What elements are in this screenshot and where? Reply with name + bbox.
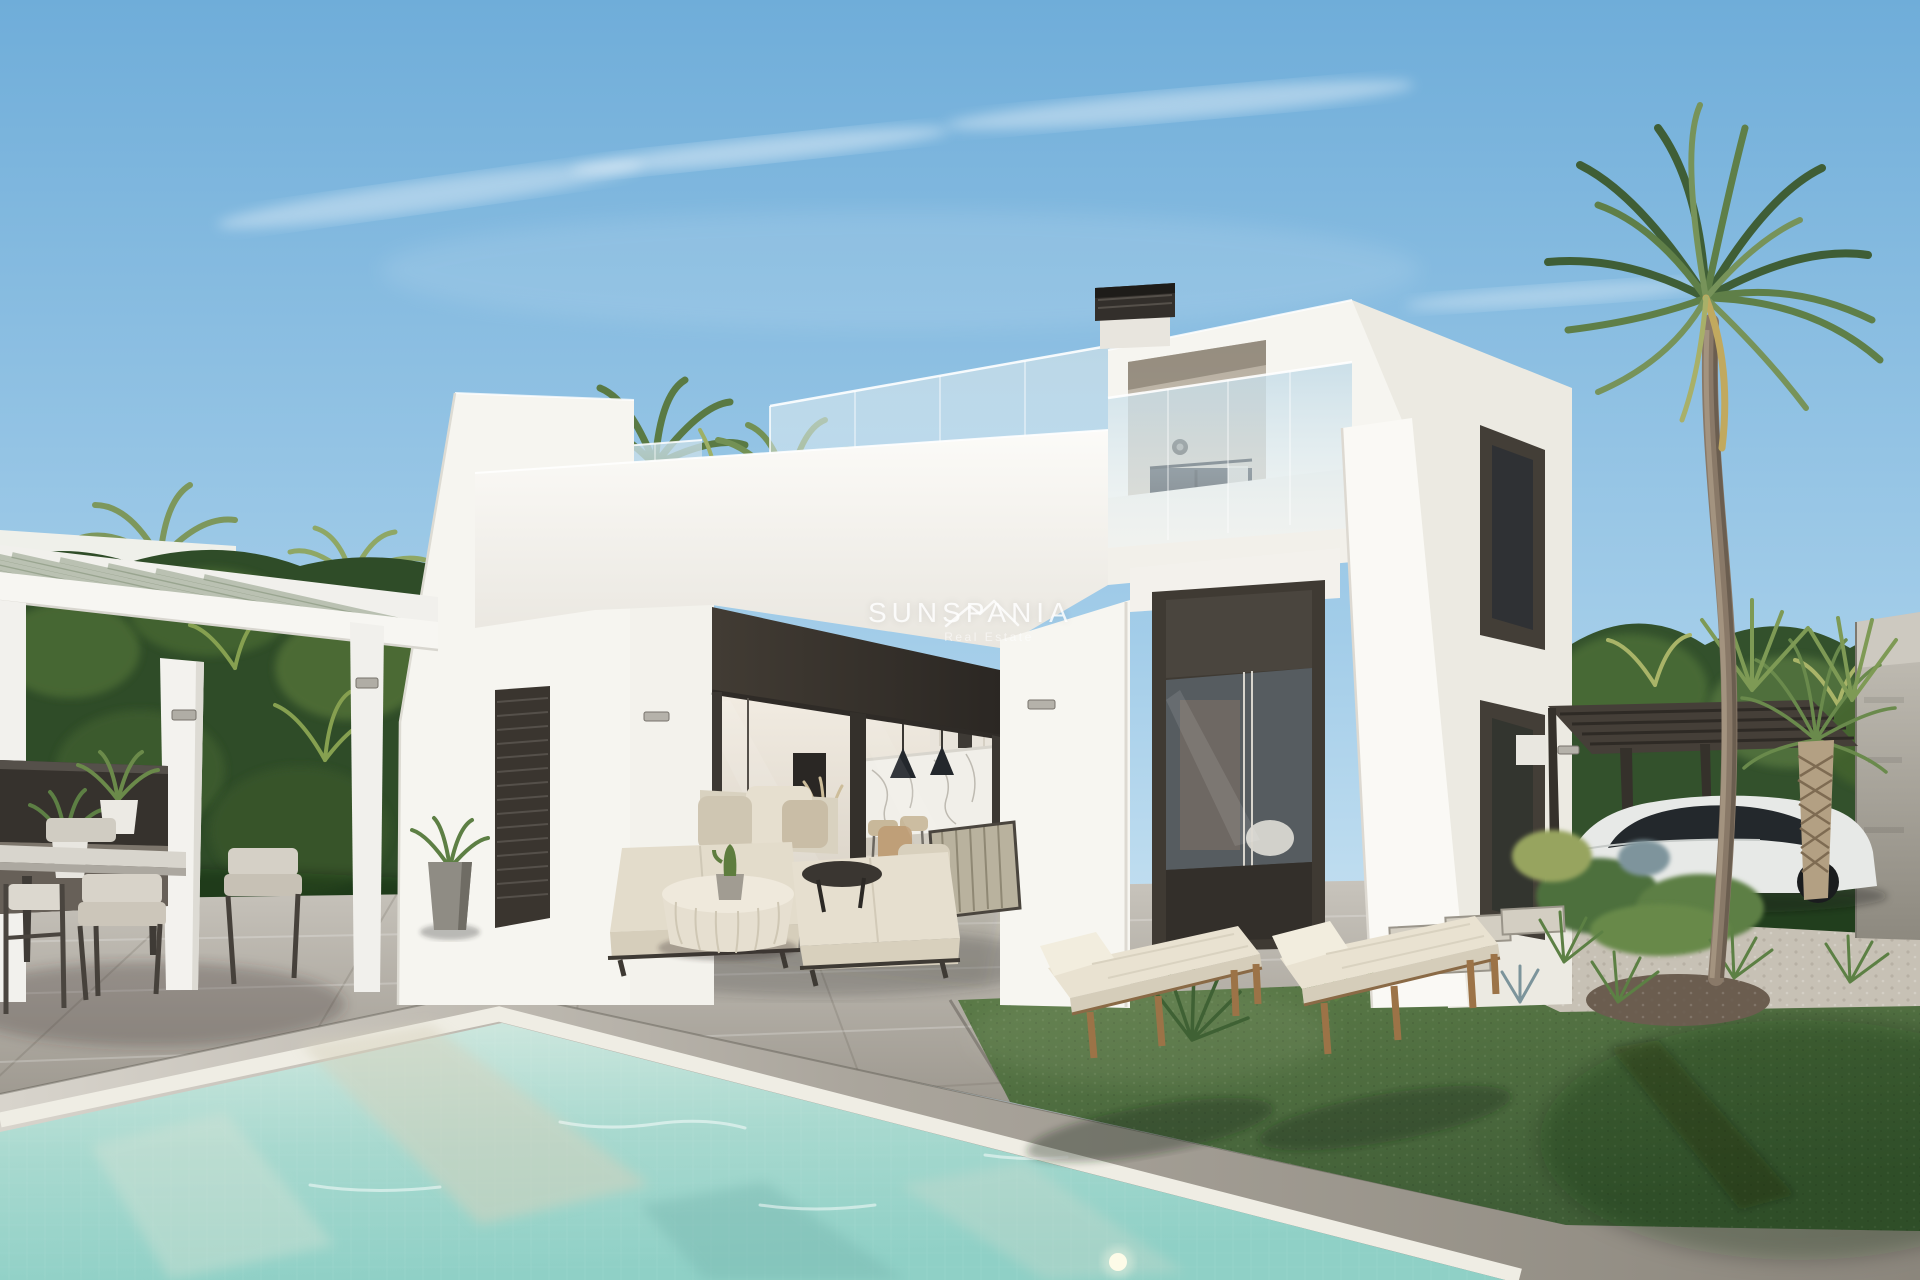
right-window-block — [1130, 548, 1340, 952]
dining-chair-far — [46, 818, 116, 842]
louvered-door — [495, 686, 550, 928]
chimney — [1095, 283, 1175, 349]
villa-exterior-render: SUNSPANIA Real Estate — [0, 0, 1920, 1280]
